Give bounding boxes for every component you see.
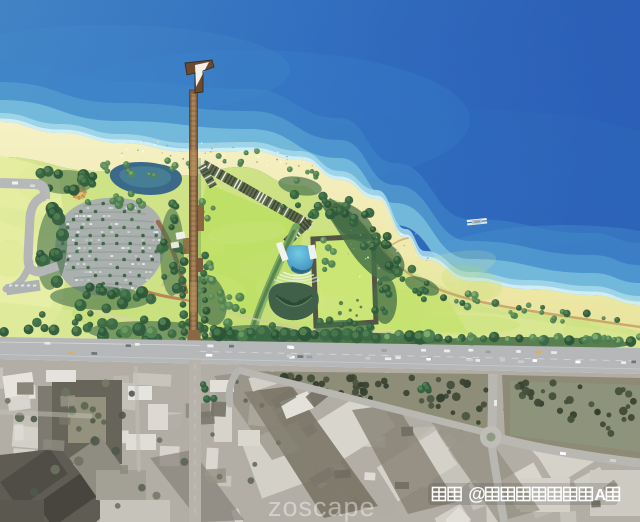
svg-text:A: A	[594, 487, 606, 504]
svg-text:zoscape: zoscape	[268, 492, 376, 522]
svg-text:@: @	[468, 484, 486, 504]
